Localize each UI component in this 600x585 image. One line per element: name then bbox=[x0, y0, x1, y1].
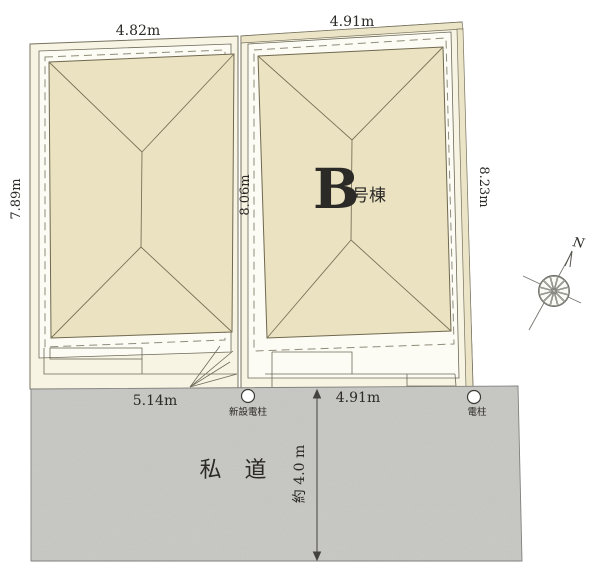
road-frontage-a-label: 5.14m bbox=[133, 393, 177, 409]
private-road: 5.14m 4.91m 約 4.0 m 私 道 bbox=[31, 386, 522, 561]
lot-a-width-label: 4.82m bbox=[116, 23, 160, 39]
road-texture bbox=[31, 386, 522, 561]
lot-b: B 号棟 bbox=[241, 22, 473, 389]
road-frontage-b-label: 4.91m bbox=[336, 390, 380, 406]
existing-utility-pole-label: 電柱 bbox=[467, 406, 487, 418]
compass-rose bbox=[539, 276, 570, 307]
new-utility-pole-icon bbox=[242, 390, 255, 403]
north-arrow-icon bbox=[565, 251, 572, 267]
building-b-suffix: 号棟 bbox=[352, 186, 386, 206]
lot-a bbox=[30, 36, 238, 389]
road-width-label: 約 4.0 m bbox=[292, 445, 308, 503]
existing-utility-pole-icon bbox=[468, 391, 481, 404]
lot-b-width-label: 4.91m bbox=[330, 14, 374, 30]
center-depth-label: 8.06m bbox=[238, 174, 253, 215]
site-plan-canvas: B 号棟 5.14m 4.91m 約 4.0 m 私 道 新設電柱 電柱 4.8… bbox=[0, 0, 600, 585]
lot-b-depth-label: 8.23m bbox=[476, 166, 491, 207]
lot-a-depth-label: 7.89m bbox=[9, 178, 24, 219]
new-utility-pole-label: 新設電柱 bbox=[229, 406, 268, 418]
private-road-label: 私 道 bbox=[200, 458, 275, 483]
north-label: N bbox=[571, 235, 586, 252]
site-plan-drawing: B 号棟 5.14m 4.91m 約 4.0 m 私 道 新設電柱 電柱 4.8… bbox=[0, 0, 600, 585]
compass: N bbox=[523, 235, 586, 330]
